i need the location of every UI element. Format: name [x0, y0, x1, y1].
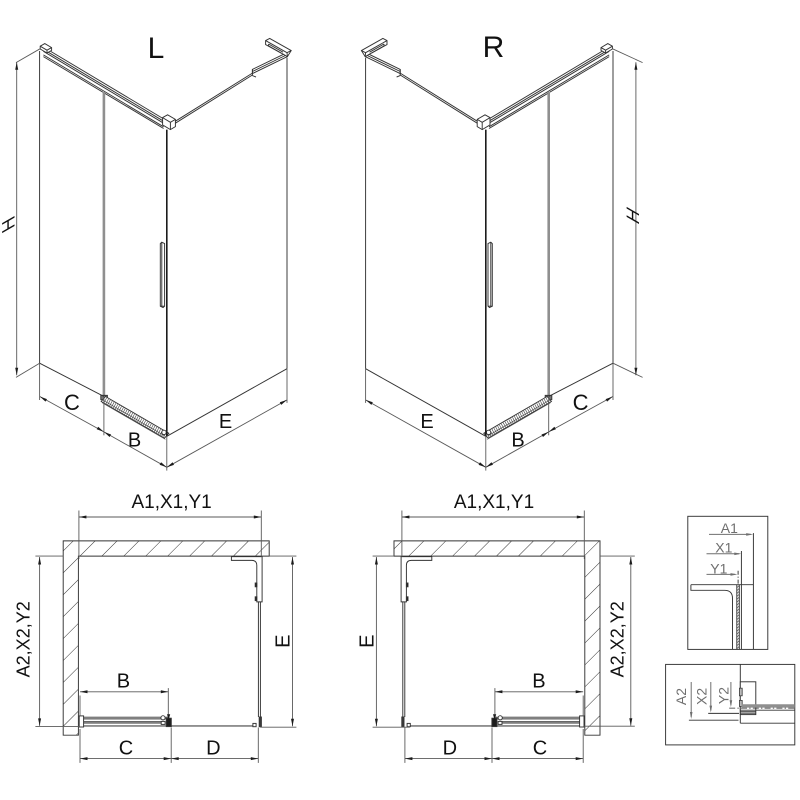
svg-text:E: E: [272, 635, 294, 648]
svg-text:C: C: [64, 390, 80, 415]
svg-text:Y2: Y2: [715, 687, 731, 704]
svg-text:A1,X1,Y1: A1,X1,Y1: [131, 492, 211, 513]
svg-text:A2,X2,Y2: A2,X2,Y2: [608, 601, 628, 677]
svg-text:L: L: [148, 32, 165, 65]
svg-text:X1: X1: [715, 540, 732, 556]
svg-text:Y1: Y1: [710, 560, 727, 576]
svg-text:D: D: [443, 737, 457, 759]
svg-text:A1: A1: [721, 520, 738, 536]
svg-text:B: B: [128, 430, 141, 452]
svg-text:C: C: [573, 390, 589, 415]
svg-text:B: B: [117, 670, 130, 692]
svg-text:E: E: [219, 411, 232, 433]
svg-text:A2: A2: [673, 688, 689, 705]
svg-text:A2,X2,Y2: A2,X2,Y2: [14, 601, 34, 677]
svg-text:C: C: [533, 737, 547, 759]
svg-text:R: R: [483, 31, 505, 64]
svg-text:E: E: [356, 635, 378, 648]
svg-text:D: D: [206, 737, 220, 759]
svg-text:B: B: [511, 430, 524, 452]
svg-text:A1,X1,Y1: A1,X1,Y1: [454, 492, 534, 513]
svg-text:X2: X2: [694, 688, 710, 705]
svg-text:B: B: [532, 670, 545, 692]
svg-text:C: C: [119, 737, 133, 759]
svg-text:E: E: [420, 411, 433, 433]
